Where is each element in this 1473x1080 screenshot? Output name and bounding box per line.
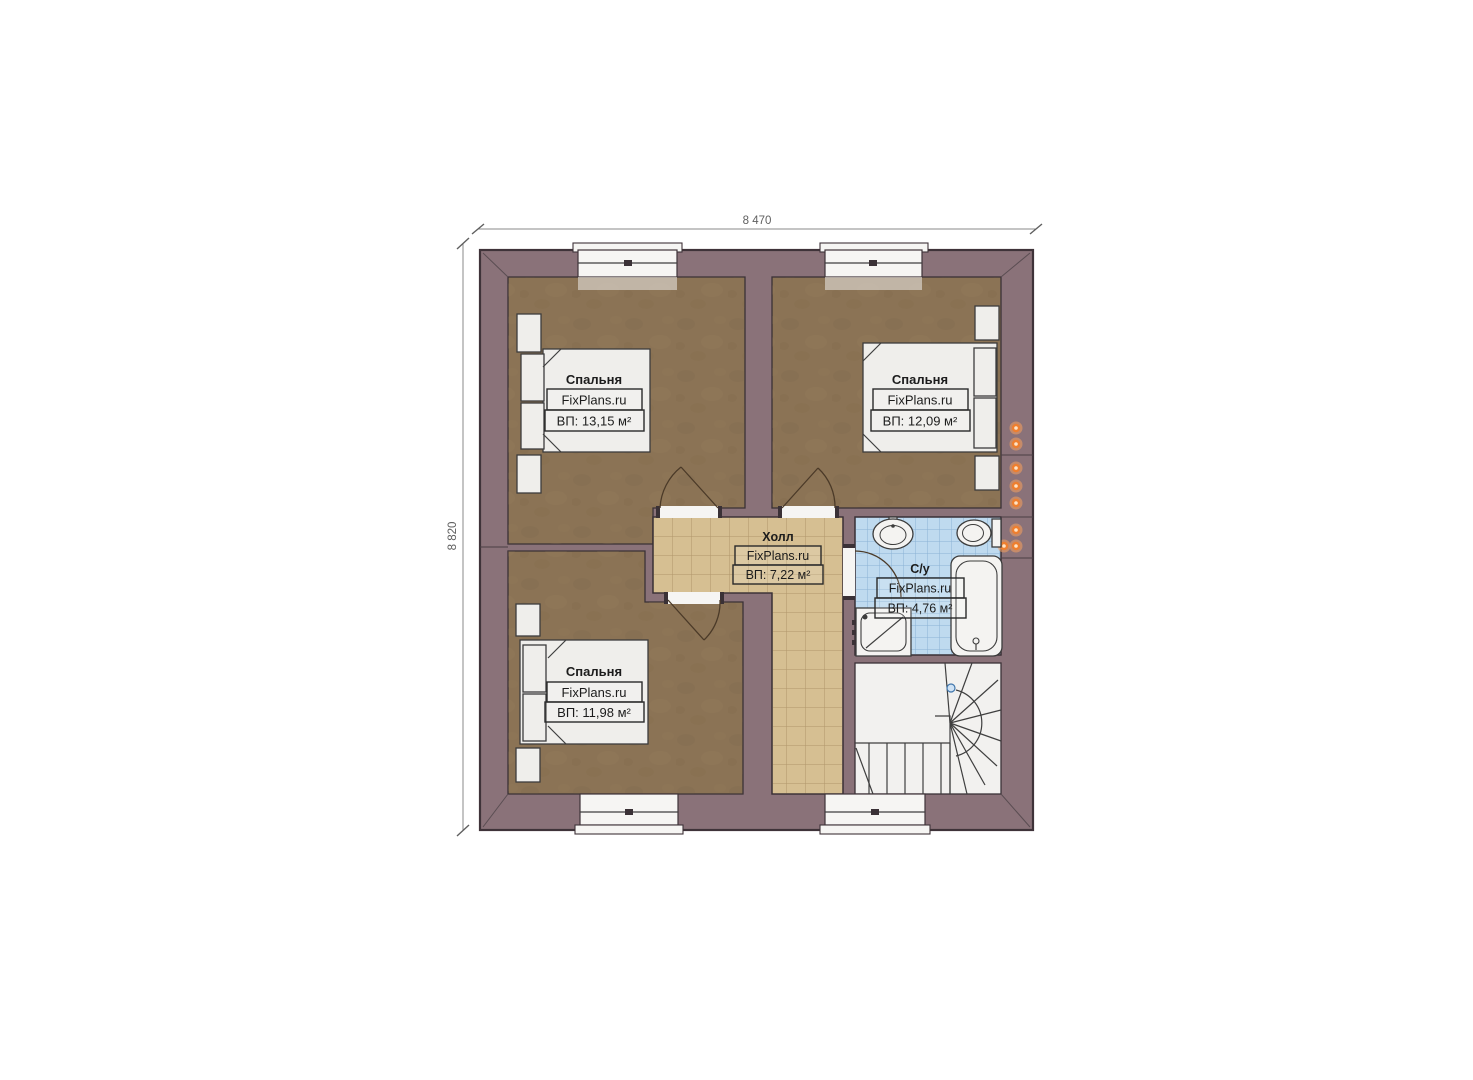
dimension-left: 8 820 xyxy=(447,238,469,836)
floor-plan-page: 8 470 8 820 xyxy=(0,0,1473,1080)
room-area: ВП: 4,76 м² xyxy=(888,602,953,616)
room-title: Спальня xyxy=(892,372,948,387)
room-brand: FixPlans.ru xyxy=(887,393,952,408)
room-title: Холл xyxy=(762,530,793,544)
dimension-top: 8 470 xyxy=(472,215,1042,234)
room-brand: FixPlans.ru xyxy=(889,582,952,596)
room-area: ВП: 12,09 м² xyxy=(883,414,958,429)
room-title: С/у xyxy=(910,562,930,576)
dimension-top-label: 8 470 xyxy=(743,215,772,227)
window-top-right xyxy=(820,243,928,290)
room-area: ВП: 7,22 м² xyxy=(746,568,811,582)
stair-direction-marker xyxy=(947,684,955,692)
window-bottom-right xyxy=(820,794,930,834)
window-bottom-left xyxy=(575,794,683,834)
dimension-left-label: 8 820 xyxy=(447,522,459,551)
room-area: ВП: 13,15 м² xyxy=(557,414,632,429)
room-title: Спальня xyxy=(566,372,622,387)
room-brand: FixPlans.ru xyxy=(561,393,626,408)
room-area: ВП: 11,98 м² xyxy=(557,705,631,720)
floor-plan-drawing: 8 470 8 820 xyxy=(0,0,1473,1080)
room-title: Спальня xyxy=(566,664,622,679)
window-top-left xyxy=(573,243,682,290)
room-brand: FixPlans.ru xyxy=(561,685,626,700)
room-brand: FixPlans.ru xyxy=(747,549,810,563)
toilet-icon xyxy=(957,519,1001,547)
